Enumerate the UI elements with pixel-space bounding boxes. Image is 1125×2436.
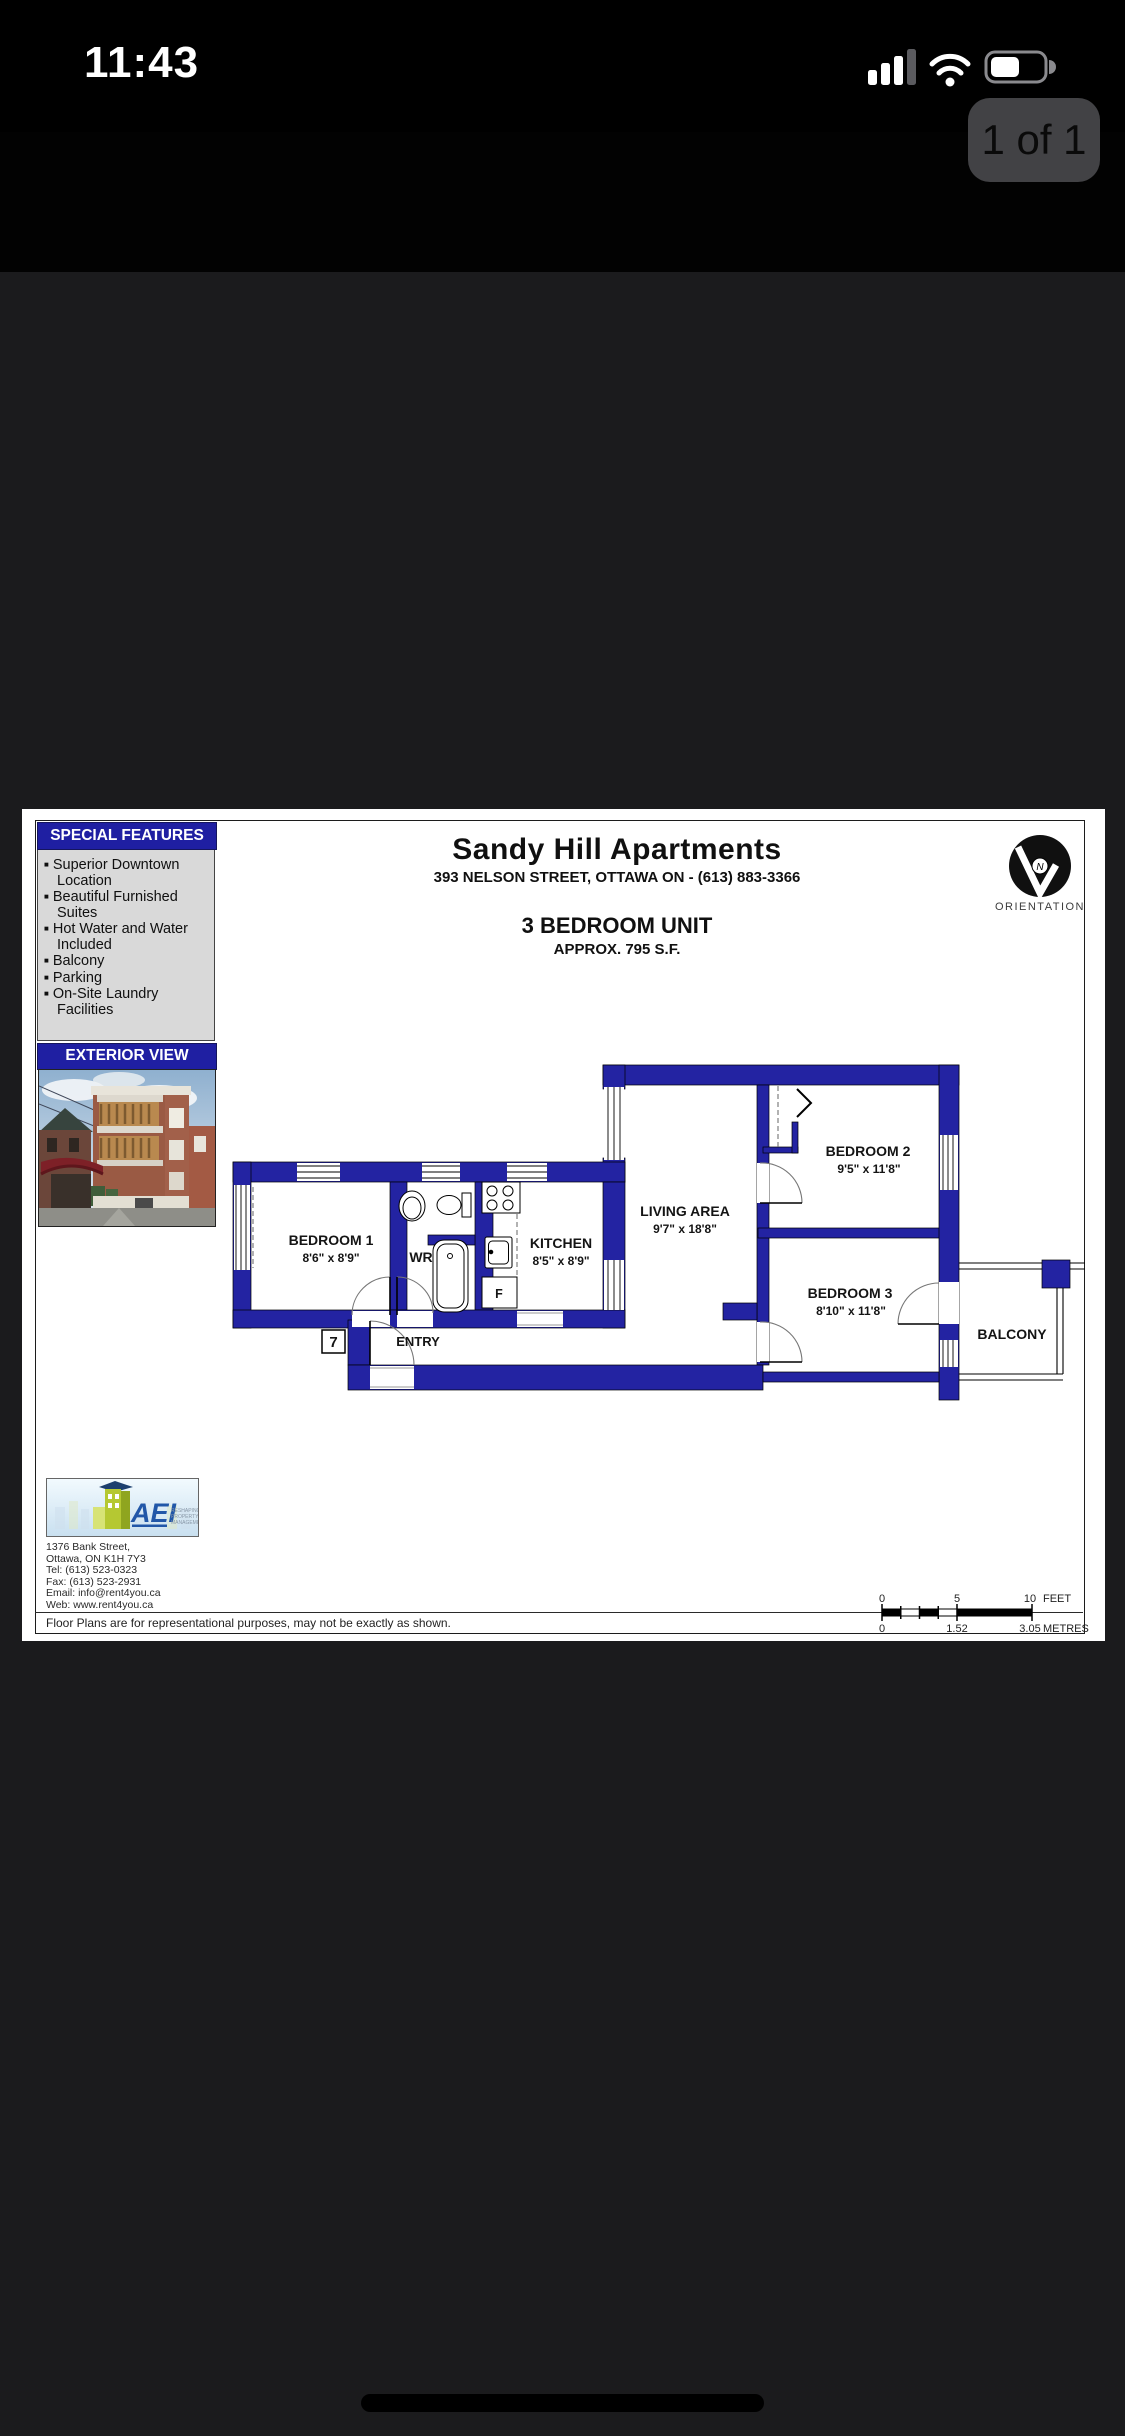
address-line: Email: info@rent4you.ca	[46, 1588, 161, 1600]
company-logo: AEI RESHAPING PROPERTY MANAGEMENT	[46, 1478, 199, 1537]
room-dims-kitchen: 8'5" x 8'9"	[532, 1254, 589, 1268]
address-line: Web: www.rent4you.ca	[46, 1600, 161, 1612]
logo-tagline-3: MANAGEMENT	[171, 1520, 199, 1526]
scale-m-305: 3.05	[1019, 1623, 1040, 1635]
status-time: 11:43	[84, 38, 199, 88]
disclaimer-text: Floor Plans are for representational pur…	[46, 1616, 451, 1630]
home-indicator[interactable]	[361, 2394, 764, 2412]
room-label-wr: WR	[409, 1249, 432, 1265]
page-indicator-badge: 1 of 1	[968, 98, 1100, 182]
address-line: 1376 Bank Street,	[46, 1542, 161, 1554]
room-label-bedroom2: BEDROOM 2	[826, 1143, 911, 1159]
scale-m-unit: METRES	[1043, 1623, 1089, 1635]
room-label-bedroom1: BEDROOM 1	[289, 1232, 374, 1248]
screen: { "status_bar": { "time": "11:43" }, "pa…	[0, 0, 1125, 2436]
status-icons	[868, 44, 1080, 90]
scale-bar-graphic	[882, 1604, 1032, 1621]
scale-feet-0: 0	[879, 1593, 885, 1605]
room-label-kitchen: KITCHEN	[530, 1235, 592, 1251]
room-label-bedroom3: BEDROOM 3	[808, 1285, 893, 1301]
room-dims-living: 9'7" x 18'8"	[653, 1222, 717, 1236]
nav-bar: Unit07-AB-Jun04-13…	[0, 132, 1125, 272]
battery-icon	[986, 52, 1056, 82]
logo-text: AEI	[130, 1498, 177, 1528]
scale-feet-unit: FEET	[1043, 1593, 1071, 1605]
toilet	[437, 1196, 461, 1215]
unit-number: 7	[329, 1334, 337, 1351]
address-line: Tel: (613) 523-0323	[46, 1565, 161, 1577]
room-dims-bedroom3: 8'10" x 11'8"	[816, 1304, 886, 1318]
document-page[interactable]: SPECIAL FEATURES Superior Downtown Locat…	[22, 809, 1105, 1641]
wifi-icon	[932, 56, 968, 86]
label-entry: ENTRY	[396, 1334, 440, 1349]
room-dims-bedroom2: 9'5" x 11'8"	[837, 1162, 900, 1176]
room-label-living: LIVING AREA	[640, 1203, 730, 1219]
room-label-balcony: BALCONY	[977, 1326, 1047, 1342]
label-fridge: F	[495, 1287, 503, 1301]
scale-bar: 0 5 10 FEET 0 1.52 3.05 METRES	[862, 1584, 1092, 1639]
page-indicator-text: 1 of 1	[981, 116, 1086, 164]
company-address: 1376 Bank Street, Ottawa, ON K1H 7Y3 Tel…	[46, 1542, 161, 1611]
cellular-icon	[868, 49, 916, 85]
room-dims-bedroom1: 8'6" x 8'9"	[302, 1251, 359, 1265]
closet-door-arrow	[797, 1089, 811, 1117]
scale-feet-10: 10	[1024, 1593, 1036, 1605]
status-bar: 11:43	[0, 0, 1125, 132]
scale-feet-5: 5	[954, 1593, 960, 1605]
scale-m-152: 1.52	[946, 1623, 967, 1635]
scale-m-0: 0	[879, 1623, 885, 1635]
